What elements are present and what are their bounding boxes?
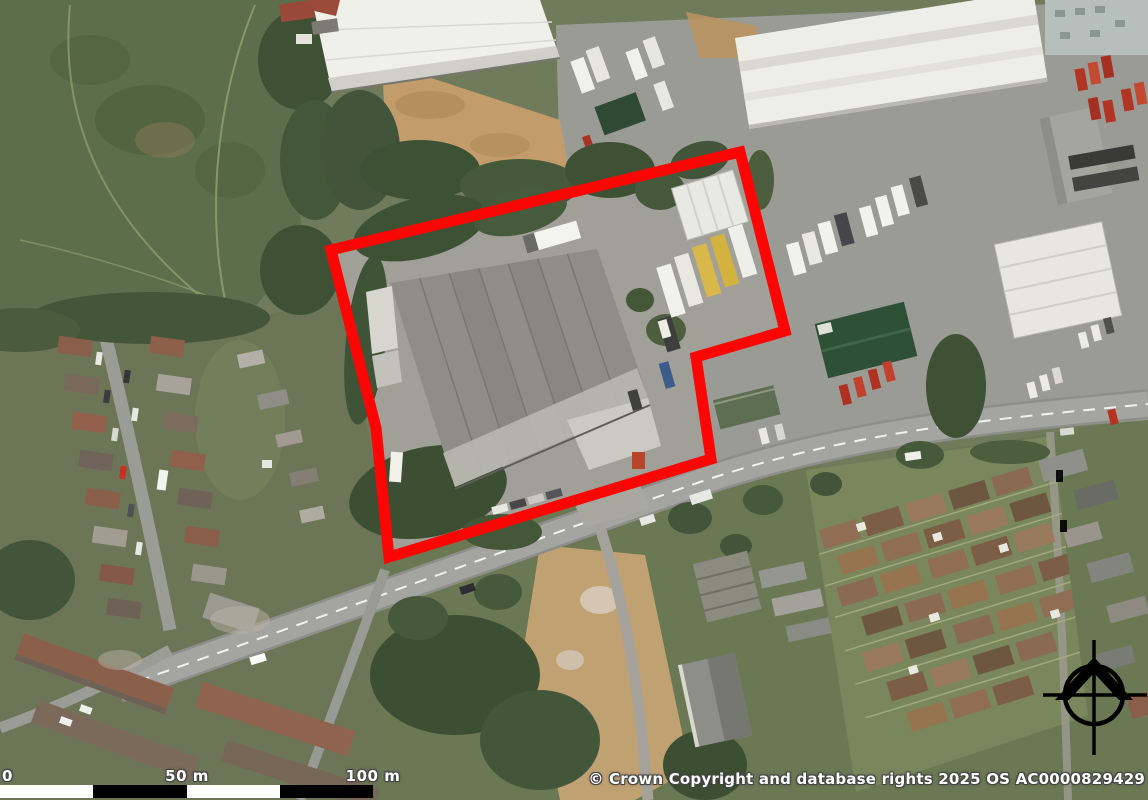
north-compass-icon [1036, 638, 1148, 760]
scale-bar-track [0, 785, 373, 798]
scale-segment [93, 785, 186, 798]
aerial-map-view: 0 50 m 100 m © Crown Copyright and datab… [0, 0, 1148, 800]
scale-label-100m: 100 m [346, 767, 401, 785]
copyright-attribution: © Crown Copyright and database rights 20… [588, 770, 1145, 788]
scale-label-0: 0 [2, 767, 13, 785]
scale-segment [0, 785, 93, 798]
scale-segment [280, 785, 373, 798]
aerial-photo [0, 0, 1148, 800]
scale-segment [187, 785, 280, 798]
building-top-far-right [1045, 0, 1148, 55]
scale-label-50m: 50 m [165, 767, 209, 785]
